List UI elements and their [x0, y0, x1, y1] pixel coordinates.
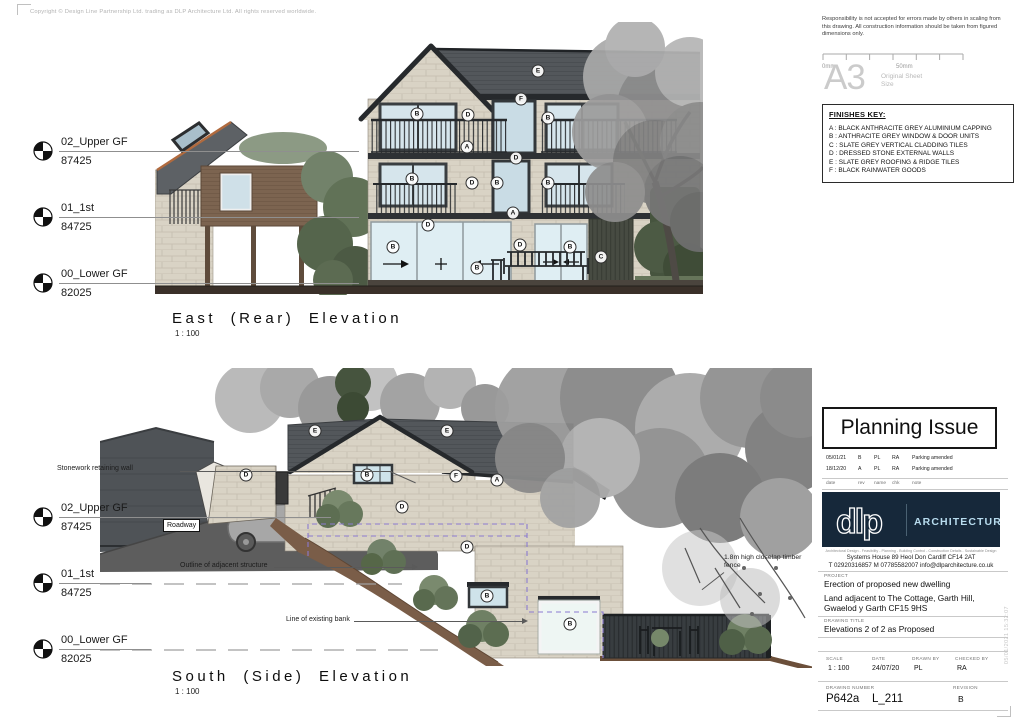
project-label: PROJECT — [824, 573, 848, 578]
finish-tag-D: D — [396, 501, 409, 514]
level-value: 87425 — [61, 521, 92, 533]
drawing-sheet: Copyright © Design Line Partnership Ltd.… — [0, 0, 1024, 724]
level-datum-icon — [33, 639, 53, 659]
finish-tag-A: A — [507, 207, 520, 220]
finish-tag-B: B — [491, 177, 504, 190]
level-label: 00_Lower GF — [61, 634, 128, 646]
drawn-by-label: DRAWN BY — [912, 656, 940, 661]
revision-header-name: name — [874, 481, 886, 486]
revision-name: PL — [874, 466, 880, 472]
date-value: 24/07/20 — [872, 665, 899, 672]
level-label: 02_Upper GF — [61, 502, 128, 514]
level-value: 84725 — [61, 221, 92, 233]
revision-rev: B — [858, 455, 861, 461]
arrowhead-icon — [412, 564, 418, 570]
drawn-by-value: PL — [914, 665, 923, 672]
finish-tag-B: B — [411, 108, 424, 121]
checked-by-label: CHECKED BY — [955, 656, 988, 661]
revision-name: PL — [874, 455, 880, 461]
finishes-item: A : BLACK ANTHRACITE GREY ALUMINIUM CAPP… — [829, 125, 1007, 133]
drawing-title-label: DRAWING TITLE — [824, 618, 864, 623]
divider — [822, 478, 1008, 479]
level-datum-icon — [33, 273, 53, 293]
level-value: 87425 — [61, 155, 92, 167]
revision-chk: RA — [892, 466, 899, 472]
revision-rev: A — [858, 466, 861, 472]
south-finish-tags: DEEBFADDBB — [100, 368, 812, 668]
finish-tag-B: B — [542, 112, 555, 125]
site-address-line: Gwaelod y Garth CF15 9HS — [824, 603, 927, 613]
level-line — [59, 649, 151, 650]
annotation-bank: Line of existing bank — [286, 616, 350, 623]
contact-line: T 02920316857 M 07785582007 info@dlparch… — [822, 562, 1000, 569]
revision-header-rev: rev — [858, 481, 865, 486]
finish-tag-D: D — [466, 177, 479, 190]
sheet-size-caption-line: Size — [881, 81, 922, 89]
leader-line — [274, 567, 412, 568]
finishes-item: F : BLACK RAINWATER GOODS — [829, 167, 1007, 175]
level-label: 01_1st — [61, 202, 94, 214]
level-label: 01_1st — [61, 568, 94, 580]
finishes-key-items: A : BLACK ANTHRACITE GREY ALUMINIUM CAPP… — [829, 125, 1007, 176]
finish-tag-B: B — [564, 241, 577, 254]
finish-tag-F: F — [515, 93, 528, 106]
revision-chk: RA — [892, 455, 899, 461]
company-logo: dlp ARCHITECTURE — [822, 492, 1000, 547]
architecture-wordmark: ARCHITECTURE — [914, 516, 1000, 528]
revision-date: 05/01/21 — [826, 455, 846, 461]
level-value: 82025 — [61, 653, 92, 665]
south-elevation-title: South (Side) Elevation — [172, 668, 412, 685]
divider — [818, 637, 1008, 638]
drawing-number: P642a — [826, 693, 859, 705]
scale-label: SCALE — [826, 656, 843, 661]
site-address-line: Land adjacent to The Cottage, Garth Hill… — [824, 593, 975, 603]
finish-tag-D: D — [422, 219, 435, 232]
finish-tag-D: D — [462, 109, 475, 122]
east-elevation-drawing: EFBDBADBDBBADBDBBC — [155, 22, 703, 295]
level-line — [59, 217, 359, 218]
finish-tag-B: B — [542, 177, 555, 190]
level-line — [59, 151, 359, 152]
drawing-number-suffix: L_211 — [872, 693, 903, 705]
east-elevation-scale: 1 : 100 — [175, 329, 199, 338]
copyright-note: Copyright © Design Line Partnership Ltd.… — [30, 9, 316, 15]
revision-label: REVISION — [953, 685, 978, 690]
date-label: DATE — [872, 656, 885, 661]
finish-tag-E: E — [441, 425, 454, 438]
revision-note: Parking amended — [912, 455, 953, 461]
scale-bar-end-label: 50mm — [896, 64, 913, 70]
finishes-key: FINISHES KEY: A : BLACK ANTHRACITE GREY … — [822, 104, 1014, 183]
level-datum-icon — [33, 141, 53, 161]
finish-tag-F: F — [450, 470, 463, 483]
divider — [818, 681, 1008, 682]
finishes-item: E : SLATE GREY ROOFING & RIDGE TILES — [829, 159, 1007, 167]
revision-value: B — [958, 694, 964, 704]
revision-header-date: date — [826, 481, 835, 486]
finishes-item: B : ANTHRACITE GREY WINDOW & DOOR UNITS — [829, 133, 1007, 141]
divider — [818, 651, 1008, 652]
plot-stamp: 05/01/2021 15:32:07 — [1004, 606, 1010, 664]
drawing-number-label: DRAWING NUMBER — [826, 685, 874, 690]
level-datum-icon — [33, 507, 53, 527]
arrowhead-icon — [522, 618, 528, 624]
disclaimer-note: Responsibility is not accepted for error… — [822, 16, 1010, 39]
finishes-key-title: FINISHES KEY: — [829, 110, 1007, 119]
leader-line — [180, 471, 392, 472]
divider — [822, 489, 1008, 490]
dlp-mark: dlp — [836, 503, 882, 541]
finishes-item: D : DRESSED STONE EXTERNAL WALLS — [829, 150, 1007, 158]
finish-tag-E: E — [532, 65, 545, 78]
revision-note: Parking amended — [912, 466, 953, 472]
leader-line — [354, 621, 522, 622]
revision-header-note: note — [912, 481, 921, 486]
services-strip: Architectural Design - Feasibility - Pla… — [822, 549, 1000, 553]
finishes-item: C : SLATE GREY VERTICAL CLADDING TILES — [829, 142, 1007, 150]
revision-date: 18/12/20 — [826, 466, 846, 472]
level-datum-icon — [33, 573, 53, 593]
divider — [818, 616, 1008, 617]
finish-tag-B: B — [406, 173, 419, 186]
finish-tag-B: B — [387, 241, 400, 254]
sheet-size-caption-line: Original Sheet — [881, 73, 922, 81]
finish-tag-A: A — [461, 141, 474, 154]
project-name: Erection of proposed new dwelling — [824, 579, 950, 589]
scale-value: 1 : 100 — [828, 665, 849, 672]
level-line — [59, 583, 151, 584]
finish-tag-C: C — [595, 251, 608, 264]
south-elevation-drawing: DEEBFADDBB — [100, 368, 812, 668]
finish-tag-A: A — [491, 474, 504, 487]
level-label: 00_Lower GF — [61, 268, 128, 280]
revision-header-chk: chk — [892, 481, 899, 486]
checked-by-value: RA — [957, 665, 967, 672]
level-value: 82025 — [61, 287, 92, 299]
east-finish-tags: EFBDBADBDBBADBDBBC — [155, 22, 703, 295]
finish-tag-B: B — [471, 262, 484, 275]
drawing-title: Elevations 2 of 2 as Proposed — [824, 624, 934, 634]
level-value: 84725 — [61, 587, 92, 599]
level-label: 02_Upper GF — [61, 136, 128, 148]
annotation-outline: Outline of adjacent structure — [180, 562, 268, 569]
sheet-size-caption: Original Sheet Size — [881, 73, 922, 89]
level-line — [59, 517, 331, 518]
level-line — [59, 283, 359, 284]
annotation-roadway: Roadway — [163, 519, 200, 532]
finish-tag-D: D — [514, 239, 527, 252]
planning-issue-stamp: Planning Issue — [822, 407, 997, 449]
sheet-size: A3 — [824, 58, 865, 98]
finish-tag-D: D — [461, 541, 474, 554]
divider — [818, 710, 1008, 711]
finish-tag-B: B — [564, 618, 577, 631]
finish-tag-D: D — [510, 152, 523, 165]
south-elevation-scale: 1 : 100 — [175, 687, 199, 696]
address-line: Systems House 89 Heol Don Cardiff CF14 2… — [822, 554, 1000, 561]
finish-tag-E: E — [309, 425, 322, 438]
trim-mark — [997, 706, 1011, 717]
finish-tag-B: B — [481, 590, 494, 603]
divider — [818, 571, 1008, 572]
annotation-stonework: Stonework retaining wall — [57, 465, 133, 472]
level-datum-icon — [33, 207, 53, 227]
annotation-fence: 1.8m high closelap timber fence — [724, 554, 806, 571]
trim-mark — [17, 4, 31, 15]
east-elevation-title: East (Rear) Elevation — [172, 310, 402, 327]
